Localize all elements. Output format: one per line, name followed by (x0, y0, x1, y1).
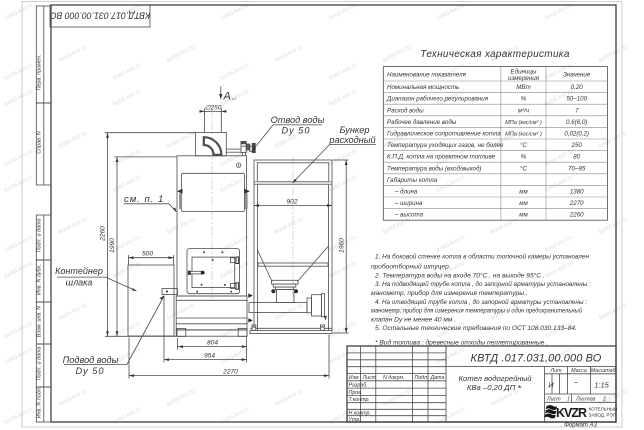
svg-text:ш: ш (232, 96, 236, 101)
svg-text:манометр, прибор для измере: манометр, прибор для измерения температу… (371, 307, 582, 315)
svg-text:Техническая характеристика: Техническая характеристика (420, 49, 570, 60)
svg-text:2. Температура воды на вхо: 2. Температура воды на входе 70°С , на в… (374, 271, 545, 279)
svg-text:Лист: Лист (362, 375, 377, 381)
svg-text:0,6(6,0): 0,6(6,0) (566, 119, 587, 126)
svg-text:Отвод воды: Отвод воды (271, 115, 325, 125)
svg-text:Dy 50: Dy 50 (281, 126, 310, 136)
svg-text:%: % (521, 96, 527, 103)
svg-text:мм: мм (519, 189, 528, 196)
svg-text:Формат А3: Формат А3 (564, 423, 597, 429)
svg-text:Инв. N дубл.: Инв. N дубл. (37, 264, 43, 295)
svg-text:KVZR: KVZR (556, 406, 587, 420)
svg-text:Значение: Значение (563, 72, 591, 79)
svg-text:Контейнер: Контейнер (55, 266, 103, 276)
svg-text:2260: 2260 (569, 212, 584, 219)
svg-text:Номинальная мощность: Номинальная мощность (387, 84, 459, 91)
svg-text:Котел водогрейный: Котел водогрейный (458, 374, 532, 383)
svg-text:Подп. и дата: Подп. и дата (37, 347, 43, 381)
svg-text:1380: 1380 (570, 189, 584, 196)
svg-text:Масса: Масса (571, 368, 587, 374)
svg-text:измерения: измерения (508, 75, 540, 82)
svg-text:804: 804 (207, 340, 218, 347)
svg-text:Габариты котла: Габариты котла (387, 177, 438, 184)
svg-text:Наименование показателя: Наименование показателя (387, 72, 467, 79)
svg-text:Лист: Лист (546, 397, 561, 403)
svg-text:%: % (521, 154, 527, 161)
svg-text:Изм: Изм (349, 375, 359, 381)
svg-text:°С: °С (520, 142, 527, 149)
svg-text:Подвод воды: Подвод воды (63, 355, 119, 365)
svg-text:70–95: 70–95 (568, 165, 586, 172)
svg-text:мм: мм (519, 212, 528, 219)
svg-text:Рабочее давление воды: Рабочее давление воды (387, 119, 457, 126)
svg-text:2270: 2270 (222, 368, 238, 375)
svg-text:80: 80 (573, 154, 580, 161)
svg-text:Н.контр.: Н.контр. (349, 411, 371, 417)
svg-text:МВт: МВт (516, 84, 530, 91)
svg-text:5. Остальные технические тр: 5. Остальные технические требования по О… (375, 324, 577, 332)
svg-text:°С: °С (520, 165, 527, 172)
svg-text:250: 250 (571, 142, 583, 149)
svg-text:м³/ч: м³/ч (518, 107, 530, 114)
svg-text:манометр, прибор для измере: манометр, прибор для измерения температу… (371, 289, 528, 297)
svg-text:902: 902 (286, 199, 297, 206)
svg-text:К.П.Д. котла на проектном топл: К.П.Д. котла на проектном топливе (387, 154, 496, 161)
svg-text:МПа (кгс/см² ): МПа (кгс/см² ) (505, 120, 542, 126)
svg-text:пробоотборный штуцер.: пробоотборный штуцер. (371, 263, 451, 271)
svg-text:расходный: расходный (328, 135, 375, 145)
svg-text:1: 1 (567, 397, 570, 403)
svg-text:КВТД.017.031.00.000 ВО: КВТД.017.031.00.000 ВО (50, 11, 151, 21)
svg-text:1990: 1990 (109, 238, 116, 253)
svg-text:500: 500 (142, 251, 153, 258)
svg-text:Температура уходящих газов, не: Температура уходящих газов, не более (387, 142, 504, 149)
svg-text:Утв.: Утв. (349, 417, 361, 423)
svg-text:1960: 1960 (338, 238, 345, 253)
svg-text:Листов: Листов (575, 397, 596, 403)
svg-text:Лит: Лит (550, 368, 563, 374)
svg-text:Подп. и дата: Подп. и дата (37, 219, 43, 253)
svg-text:Т.контр.: Т.контр. (349, 397, 370, 403)
svg-text:2270: 2270 (569, 200, 584, 207)
svg-text:А: А (223, 91, 231, 103)
svg-text:Пров.: Пров. (349, 390, 363, 396)
svg-text:Гидравлическое сопротивление к: Гидравлическое сопротивление котла (387, 131, 501, 138)
svg-text:3. На подводящей трубе кот: 3. На подводящей трубе котла , до запорн… (375, 280, 591, 288)
svg-text:мм: мм (519, 200, 528, 207)
svg-text:Подп.: Подп. (415, 375, 429, 381)
svg-text:МПа (кгс/см² ): МПа (кгс/см² ) (505, 132, 542, 138)
svg-text:0,02(0,2): 0,02(0,2) (564, 131, 589, 138)
svg-text:КОТЕЛЬНЫЙ: КОТЕЛЬНЫЙ (589, 405, 618, 412)
svg-text:Диапазон рабочего регулировани: Диапазон рабочего регулирования (386, 96, 489, 103)
svg-text:Перв. примен.: Перв. примен. (37, 55, 43, 91)
svg-text:–: – (573, 378, 579, 387)
svg-text:50–100: 50–100 (566, 96, 587, 103)
svg-text:ЗАВОД. РЭП: ЗАВОД. РЭП (589, 413, 617, 418)
svg-text:КВТД .017.031.00.000 ВО: КВТД .017.031.00.000 ВО (471, 352, 602, 364)
svg-text:клапан Dy не менее 40 мм .: клапан Dy не менее 40 мм . (371, 316, 456, 323)
svg-text:Справ. N: Справ. N (37, 131, 43, 154)
svg-text:Взам. инв. N: Взам. инв. N (37, 306, 43, 338)
svg-text:Бункер: Бункер (340, 125, 370, 135)
svg-text:Масштаб: Масштаб (591, 368, 617, 374)
svg-text:Дата: Дата (430, 375, 445, 381)
svg-text:2260: 2260 (100, 226, 107, 242)
svg-text:шлака: шлака (66, 278, 93, 288)
svg-text:0,20: 0,20 (571, 84, 584, 91)
svg-text:Расход воды: Расход воды (387, 107, 424, 114)
svg-text:Инв. N подл.: Инв. N подл. (37, 387, 43, 419)
svg-text:И: И (548, 381, 554, 390)
svg-text:– ширина: – ширина (394, 200, 423, 207)
svg-text:* Вид топлива : древесные: * Вид топлива : древесные отходы пеллети… (375, 339, 548, 347)
svg-text:Температура воды (вход/выход): Температура воды (вход/выход) (387, 165, 481, 172)
svg-text:– высота: – высота (394, 212, 424, 219)
svg-text:1. На боковой стенке котла: 1. На боковой стенке котла в области топ… (375, 253, 589, 261)
svg-text:1:15: 1:15 (594, 381, 609, 390)
svg-text:Dy 50: Dy 50 (75, 366, 104, 376)
svg-text:4. На отводящей трубе котл: 4. На отводящей трубе котла , до запорно… (375, 298, 587, 306)
svg-text:Разраб.: Разраб. (349, 383, 368, 389)
svg-text:N докум.: N докум. (383, 375, 404, 381)
svg-text:– длина: – длина (394, 189, 418, 196)
svg-text:954: 954 (204, 352, 215, 359)
svg-text:2: 2 (602, 397, 606, 403)
svg-text:∅250: ∅250 (205, 105, 222, 112)
svg-text:7: 7 (575, 107, 579, 114)
svg-text:см. п. 1: см. п. 1 (124, 194, 164, 205)
